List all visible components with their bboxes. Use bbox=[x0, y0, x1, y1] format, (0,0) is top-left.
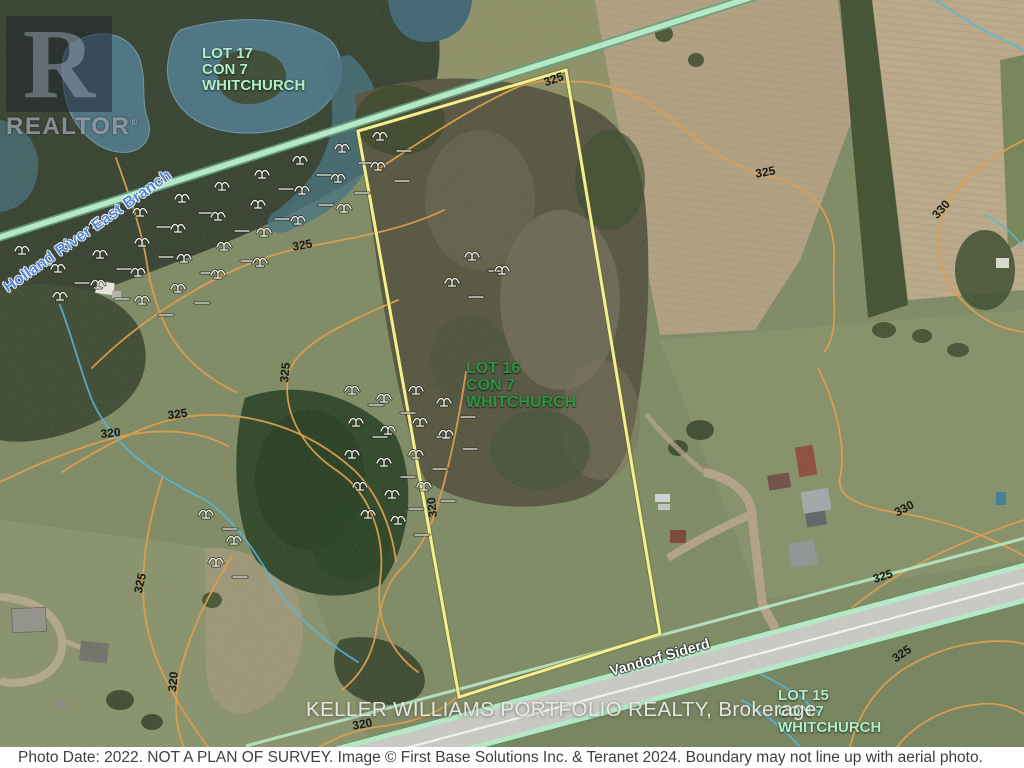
lot-16-label: LOT 16 CON 7 WHITCHURCH bbox=[466, 360, 576, 411]
disclaimer-text: Photo Date: 2022. NOT A PLAN OF SURVEY. … bbox=[18, 749, 983, 766]
wetland-symbol bbox=[215, 183, 229, 190]
lot-17-label: LOT 17 CON 7 WHITCHURCH bbox=[202, 46, 305, 94]
wetland-symbol bbox=[337, 205, 351, 212]
wetland-symbol bbox=[293, 157, 307, 164]
disclaimer-bar: Photo Date: 2022. NOT A PLAN OF SURVEY. … bbox=[0, 747, 1024, 768]
wetland-symbol bbox=[349, 419, 363, 426]
realtor-watermark: R REALTOR® bbox=[6, 16, 118, 141]
wetland-symbol bbox=[209, 559, 223, 566]
wetland-symbol bbox=[331, 175, 345, 182]
wetland-symbol bbox=[135, 239, 149, 246]
realtor-logo-r: R bbox=[23, 19, 95, 109]
realtor-wordmark: REALTOR® bbox=[6, 113, 118, 141]
contour-elevation-label: 325 bbox=[167, 406, 189, 423]
wetland-symbol bbox=[385, 491, 399, 498]
contour-elevation-label: 320 bbox=[100, 425, 122, 441]
contour-elevation-label: 320 bbox=[165, 671, 181, 692]
wetland-symbol bbox=[437, 399, 451, 406]
wetland-symbol bbox=[53, 293, 67, 300]
wetland-symbol bbox=[391, 517, 405, 524]
contour-elevation-label: 320 bbox=[424, 496, 440, 518]
wetland-symbol bbox=[15, 247, 29, 254]
wetland-symbol bbox=[409, 451, 423, 458]
wetland-symbol bbox=[211, 213, 225, 220]
wetland-symbol bbox=[345, 387, 359, 394]
wetland-symbol bbox=[445, 279, 459, 286]
wetland-symbol bbox=[291, 217, 305, 224]
brokerage-watermark: KELLER WILLIAMS PORTFOLIO REALTY, Broker… bbox=[306, 698, 817, 722]
wetland-symbol bbox=[255, 171, 269, 178]
contour-elevation-label: 325 bbox=[889, 642, 914, 665]
wetland-symbol bbox=[135, 297, 149, 304]
wetland-symbol bbox=[381, 427, 395, 434]
wetland-symbol bbox=[93, 251, 107, 258]
realtor-logo-box: R bbox=[6, 16, 112, 112]
wetland-symbol bbox=[171, 225, 185, 232]
wetland-symbol bbox=[413, 419, 427, 426]
contour-elevation-label: 325 bbox=[291, 236, 313, 253]
wetland-symbol bbox=[295, 187, 309, 194]
contour-elevation-label: 325 bbox=[131, 572, 149, 595]
wetland-symbol bbox=[227, 537, 241, 544]
wetland-symbol bbox=[199, 511, 213, 518]
wetland-symbol bbox=[409, 387, 423, 394]
wetland-symbol bbox=[171, 285, 185, 292]
contour-elevation-label: 325 bbox=[871, 566, 895, 586]
registered-mark: ® bbox=[130, 117, 137, 127]
wetland-symbol bbox=[175, 195, 189, 202]
wetland-symbol bbox=[217, 243, 231, 250]
wetland-symbol bbox=[377, 459, 391, 466]
wetland-symbol bbox=[251, 201, 265, 208]
wetland-symbol bbox=[177, 255, 191, 262]
wetland-symbol bbox=[335, 145, 349, 152]
aerial-listing-map: 3253253303253253253203203253203303253253… bbox=[0, 0, 1024, 768]
contour-elevation-label: 325 bbox=[277, 362, 293, 384]
wetland-symbol bbox=[373, 133, 387, 140]
wetland-symbol bbox=[377, 395, 391, 402]
wetland-symbol bbox=[131, 269, 145, 276]
wetland-symbol bbox=[257, 229, 271, 236]
wetland-symbol bbox=[465, 253, 479, 260]
wetland-symbol bbox=[345, 451, 359, 458]
wetland-symbol bbox=[91, 281, 105, 288]
